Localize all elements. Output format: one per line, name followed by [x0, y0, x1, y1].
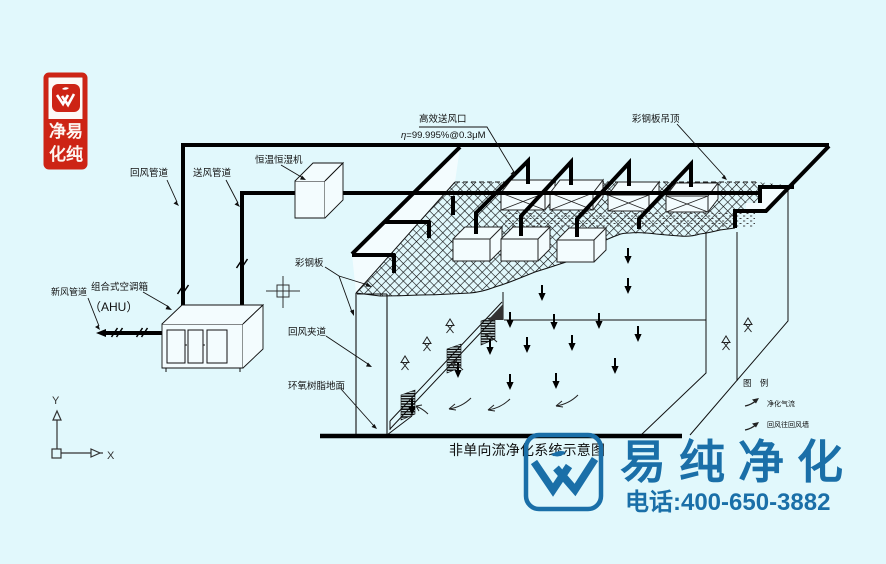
svg-text:净: 净	[49, 121, 66, 141]
svg-text:纯: 纯	[66, 144, 83, 164]
svg-text:回风夹道: 回风夹道	[288, 326, 327, 338]
svg-text:彩钢板吊顶: 彩钢板吊顶	[632, 113, 680, 125]
svg-text:组合式空调箱: 组合式空调箱	[91, 281, 148, 293]
svg-text:回风往回风墙: 回风往回风墙	[767, 420, 809, 429]
svg-text:化: 化	[49, 144, 66, 164]
svg-text:净化气流: 净化气流	[767, 399, 795, 408]
svg-text:回风管道: 回风管道	[130, 167, 169, 179]
svg-text:（AHU）: （AHU）	[89, 300, 138, 314]
svg-text:新风管道: 新风管道	[51, 286, 87, 297]
svg-text:图 例: 图 例	[743, 378, 771, 388]
svg-text:易: 易	[66, 122, 83, 141]
svg-text:易纯净化: 易纯净化	[620, 436, 856, 488]
svg-text:电话:400-650-3882: 电话:400-650-3882	[625, 489, 830, 516]
svg-text:送风管道: 送风管道	[193, 167, 232, 179]
svg-text:彩钢板: 彩钢板	[295, 257, 324, 269]
svg-text:Y: Y	[52, 395, 60, 407]
svg-text:X: X	[107, 450, 115, 462]
svg-text:恒温恒湿机: 恒温恒湿机	[255, 154, 303, 166]
svg-text:高效送风口: 高效送风口	[419, 113, 467, 125]
svg-text:环氧树脂地面: 环氧树脂地面	[288, 380, 345, 392]
svg-text:η=99.995%@0.3μM: η=99.995%@0.3μM	[401, 130, 486, 141]
